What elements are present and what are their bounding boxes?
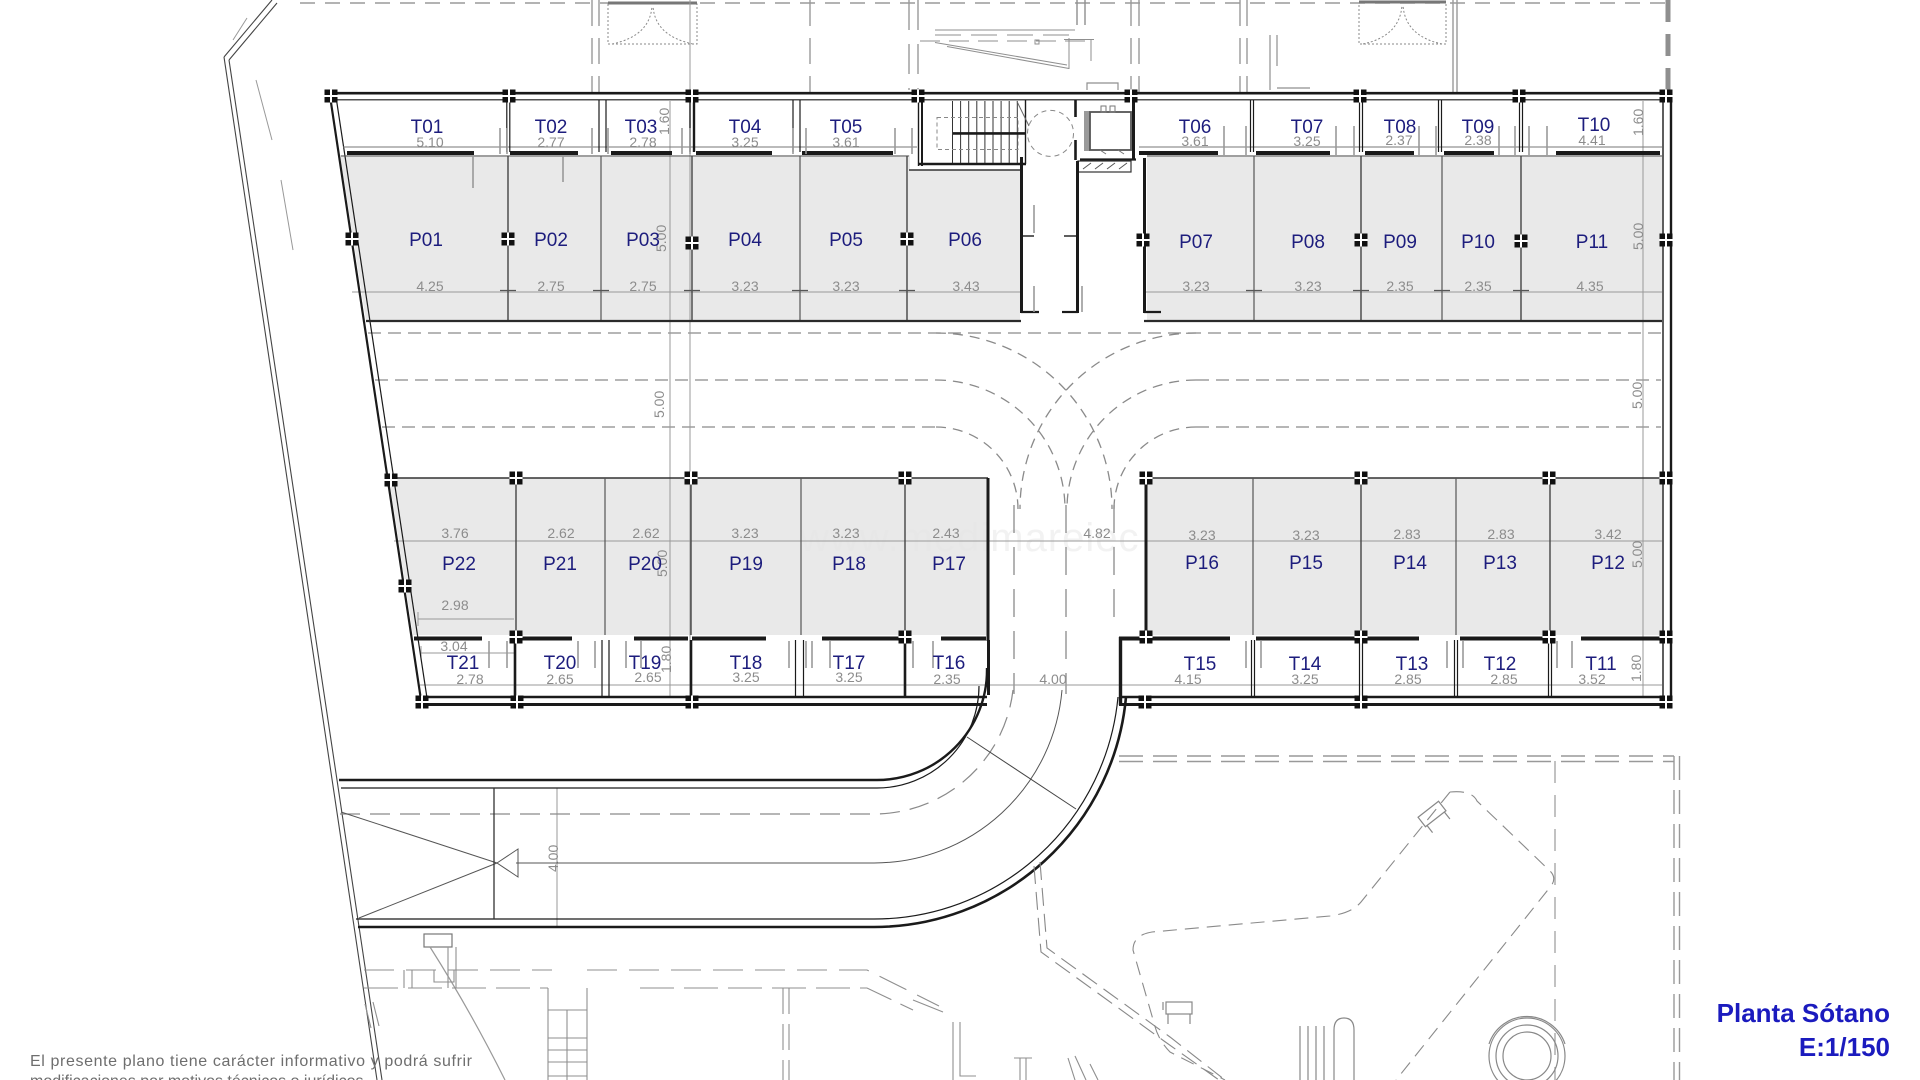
svg-text:P07: P07 — [1179, 232, 1213, 253]
svg-text:3.25: 3.25 — [731, 134, 758, 150]
svg-text:2.62: 2.62 — [547, 525, 574, 541]
svg-text:4.35: 4.35 — [1576, 278, 1603, 294]
svg-text:2.35: 2.35 — [933, 671, 960, 687]
svg-text:3.23: 3.23 — [731, 278, 758, 294]
svg-text:2.38: 2.38 — [1464, 132, 1491, 148]
svg-text:4.00: 4.00 — [545, 845, 561, 872]
svg-text:1.60: 1.60 — [1630, 109, 1646, 136]
svg-text:3.42: 3.42 — [1594, 526, 1621, 542]
svg-text:3.52: 3.52 — [1578, 671, 1605, 687]
svg-text:3.25: 3.25 — [835, 669, 862, 685]
svg-text:P10: P10 — [1461, 232, 1495, 253]
svg-text:2.35: 2.35 — [1464, 278, 1491, 294]
svg-text:4.41: 4.41 — [1578, 132, 1605, 148]
svg-text:3.23: 3.23 — [832, 525, 859, 541]
svg-text:2.78: 2.78 — [456, 671, 483, 687]
svg-text:P03: P03 — [626, 230, 660, 251]
svg-text:2.77: 2.77 — [537, 134, 564, 150]
svg-text:2.35: 2.35 — [1386, 278, 1413, 294]
svg-text:P11: P11 — [1576, 232, 1608, 253]
svg-text:3.25: 3.25 — [732, 669, 759, 685]
svg-text:2.62: 2.62 — [632, 525, 659, 541]
svg-text:2.65: 2.65 — [634, 669, 661, 685]
svg-text:P05: P05 — [829, 230, 863, 251]
svg-text:P12: P12 — [1591, 553, 1625, 574]
svg-text:modificaciones por motivos téc: modificaciones por motivos técnicos o ju… — [30, 1073, 368, 1080]
svg-text:2.37: 2.37 — [1385, 132, 1412, 148]
svg-text:P17: P17 — [932, 554, 966, 575]
svg-text:5.00: 5.00 — [1629, 541, 1645, 568]
svg-text:2.85: 2.85 — [1490, 671, 1517, 687]
svg-text:P15: P15 — [1289, 553, 1323, 574]
svg-text:P22: P22 — [442, 554, 476, 575]
svg-text:2.78: 2.78 — [629, 134, 656, 150]
svg-text:2.83: 2.83 — [1393, 526, 1420, 542]
svg-text:3.25: 3.25 — [1291, 671, 1318, 687]
svg-text:3.23: 3.23 — [832, 278, 859, 294]
svg-text:5.00: 5.00 — [1630, 223, 1646, 250]
svg-text:5.10: 5.10 — [416, 134, 443, 150]
svg-text:P16: P16 — [1185, 553, 1219, 574]
svg-text:P08: P08 — [1291, 232, 1325, 253]
svg-text:P06: P06 — [948, 230, 982, 251]
svg-text:P20: P20 — [628, 554, 662, 575]
svg-text:1.60: 1.60 — [656, 108, 672, 135]
svg-text:Planta Sótano: Planta Sótano — [1717, 998, 1890, 1028]
svg-text:3.43: 3.43 — [952, 278, 979, 294]
svg-text:3.23: 3.23 — [1292, 527, 1319, 543]
svg-text:3.76: 3.76 — [441, 525, 468, 541]
svg-text:P21: P21 — [543, 554, 577, 575]
svg-text:2.83: 2.83 — [1487, 526, 1514, 542]
svg-text:2.75: 2.75 — [537, 278, 564, 294]
svg-text:4.25: 4.25 — [416, 278, 443, 294]
svg-text:2.75: 2.75 — [629, 278, 656, 294]
svg-text:P02: P02 — [534, 230, 568, 251]
svg-text:E:1/150: E:1/150 — [1799, 1032, 1890, 1062]
svg-text:P18: P18 — [832, 554, 866, 575]
svg-text:4.15: 4.15 — [1174, 671, 1201, 687]
svg-text:P04: P04 — [728, 230, 762, 251]
svg-text:4.82: 4.82 — [1083, 525, 1110, 541]
svg-text:2.98: 2.98 — [441, 597, 468, 613]
svg-text:3.23: 3.23 — [731, 525, 758, 541]
svg-text:2.65: 2.65 — [546, 671, 573, 687]
svg-text:3.23: 3.23 — [1182, 278, 1209, 294]
svg-text:3.61: 3.61 — [832, 134, 859, 150]
svg-text:P13: P13 — [1483, 553, 1517, 574]
svg-text:4.00: 4.00 — [1039, 671, 1066, 687]
svg-text:5.00: 5.00 — [651, 391, 667, 418]
svg-text:3.23: 3.23 — [1188, 527, 1215, 543]
svg-text:P09: P09 — [1383, 232, 1417, 253]
svg-text:P01: P01 — [409, 230, 443, 251]
svg-text:3.23: 3.23 — [1294, 278, 1321, 294]
svg-text:P14: P14 — [1393, 553, 1427, 574]
svg-text:1.80: 1.80 — [1628, 655, 1644, 682]
svg-text:2.85: 2.85 — [1394, 671, 1421, 687]
svg-text:El presente plano tiene caráct: El presente plano tiene carácter informa… — [30, 1053, 473, 1070]
svg-text:3.25: 3.25 — [1293, 133, 1320, 149]
svg-text:5.00: 5.00 — [1629, 382, 1645, 409]
svg-text:P19: P19 — [729, 554, 763, 575]
svg-text:2.43: 2.43 — [932, 525, 959, 541]
svg-text:3.61: 3.61 — [1181, 133, 1208, 149]
